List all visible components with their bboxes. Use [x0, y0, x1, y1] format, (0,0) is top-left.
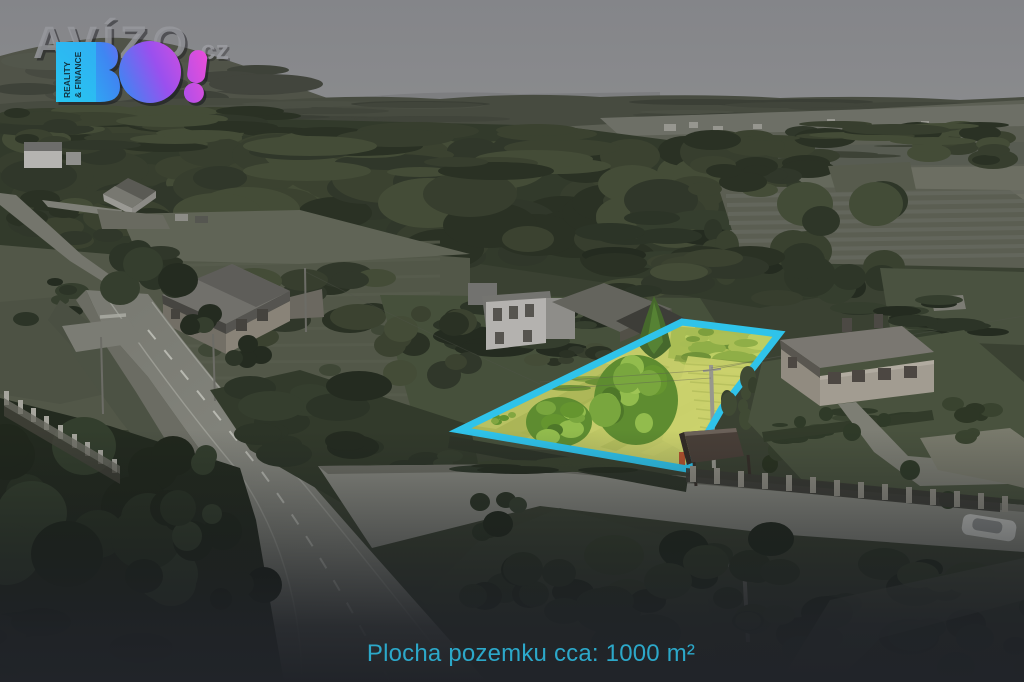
svg-text:Plocha pozemku cca: 1000 m²: Plocha pozemku cca: 1000 m²	[367, 640, 695, 667]
svg-text:REALITY: REALITY	[62, 61, 72, 98]
svg-text:& FINANCE: & FINANCE	[73, 51, 83, 98]
